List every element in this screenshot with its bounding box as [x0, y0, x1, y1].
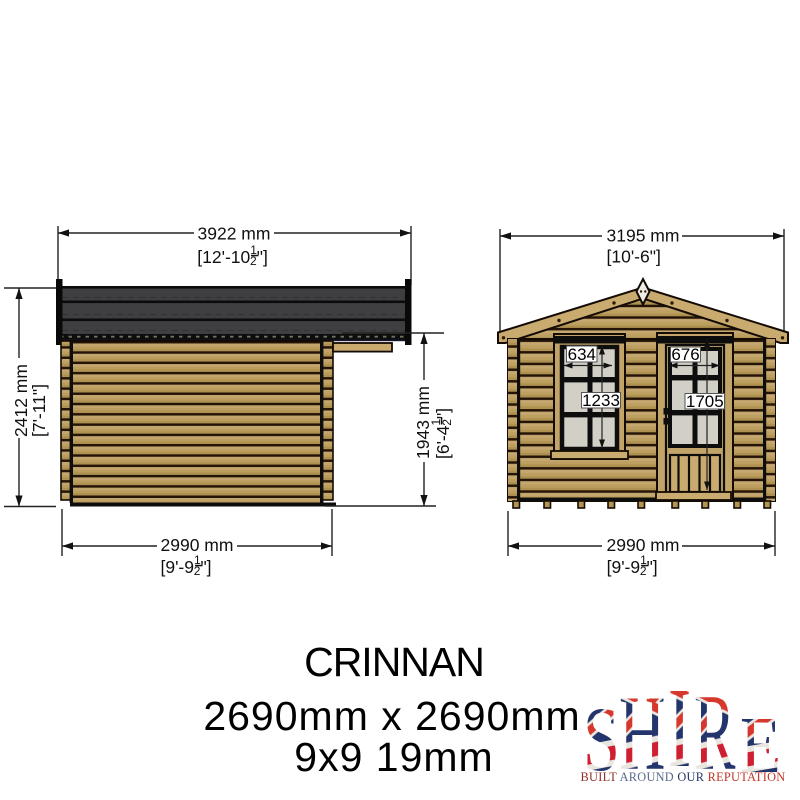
svg-text:[6'-412"]: [6'-412"]: [429, 408, 454, 459]
svg-text:3922 mm: 3922 mm: [198, 224, 271, 244]
svg-text:[9'-912"]: [9'-912"]: [607, 553, 658, 578]
svg-text:[7'-11"]: [7'-11"]: [29, 384, 49, 437]
svg-text:1233: 1233: [582, 391, 620, 410]
svg-text:[9'-912"]: [9'-912"]: [161, 553, 212, 578]
svg-text:676: 676: [671, 345, 699, 364]
svg-text:634: 634: [568, 345, 596, 364]
svg-text:[10'-6"]: [10'-6"]: [607, 247, 661, 267]
svg-text:BUILT AROUND OUR REPUTATION: BUILT AROUND OUR REPUTATION: [581, 770, 786, 784]
svg-text:3195 mm: 3195 mm: [607, 226, 680, 246]
svg-text:CRINNAN: CRINNAN: [304, 639, 484, 685]
svg-text:2990 mm: 2990 mm: [161, 535, 234, 555]
svg-text:1705: 1705: [686, 392, 724, 411]
svg-text:2990 mm: 2990 mm: [607, 535, 680, 555]
svg-text:2412 mm: 2412 mm: [11, 364, 31, 437]
svg-text:9x9 19mm: 9x9 19mm: [294, 734, 493, 780]
svg-text:2690mm x 2690mm: 2690mm x 2690mm: [203, 693, 580, 739]
